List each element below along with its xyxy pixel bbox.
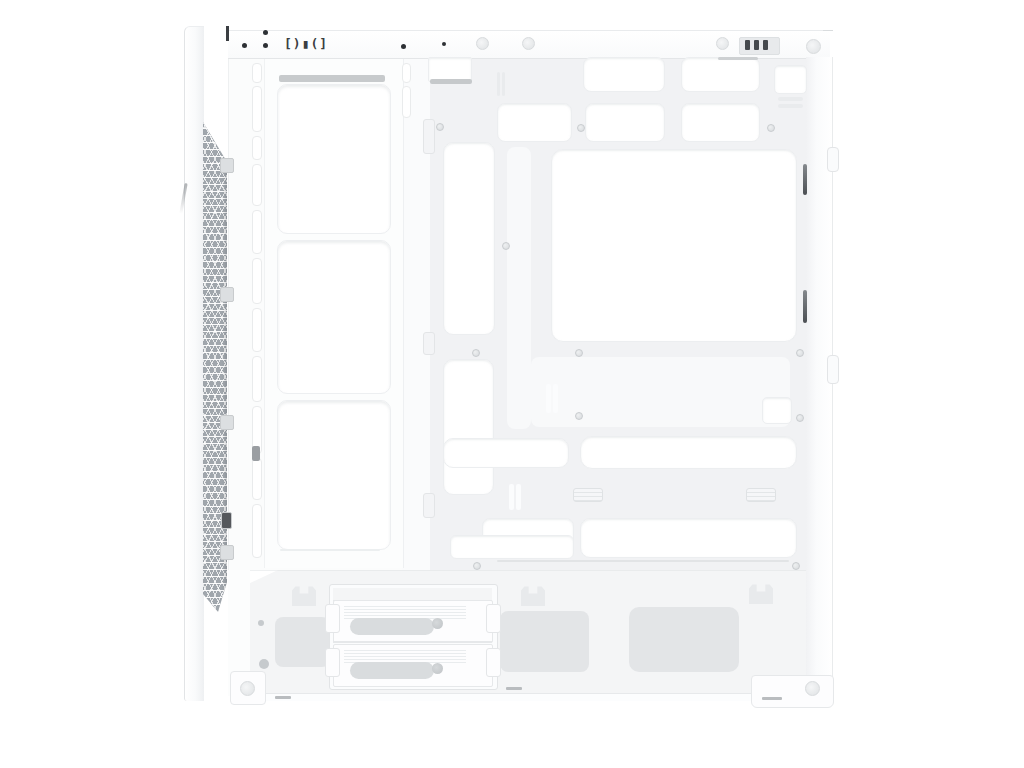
rear-wall [806, 57, 833, 698]
pc-case-product-image: [)▮(] [0, 0, 1024, 768]
front-foot [230, 671, 266, 705]
front-top-latch [226, 26, 229, 41]
fan-mount-bracket [264, 57, 404, 568]
bracket-tray-gap [402, 57, 430, 570]
top-io-stamping: [)▮(] [284, 36, 328, 51]
motherboard-tray [430, 57, 806, 570]
front-mesh-strip [203, 118, 227, 612]
top-right-seam [823, 30, 833, 31]
case-bottom-rail [250, 693, 752, 701]
drive-cage-top-rail [333, 588, 492, 601]
top-vent-slot [739, 37, 780, 55]
rear-foot [751, 675, 834, 708]
drive-cage-divider [333, 641, 492, 643]
front-panel-edge [184, 26, 204, 701]
